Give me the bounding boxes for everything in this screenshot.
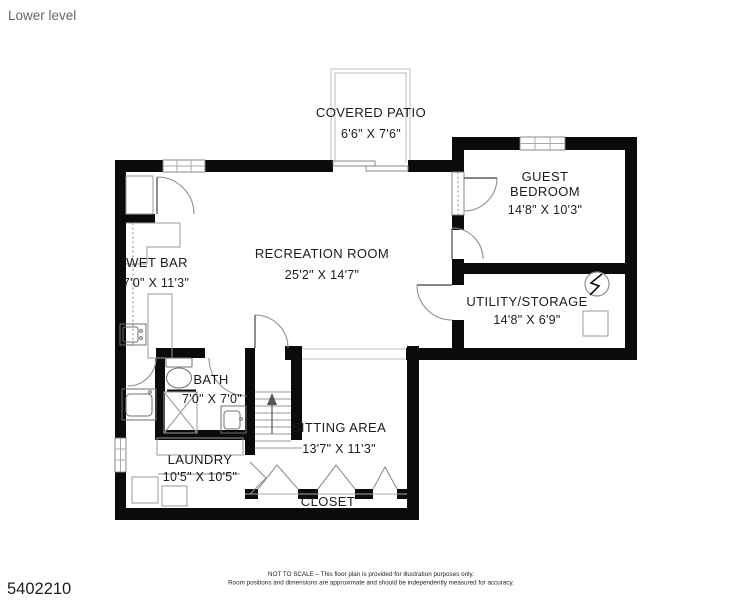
room-dims-laundry: 10'5" X 10'5" xyxy=(163,470,238,484)
room-label-sitting: SITTING AREA xyxy=(292,420,386,435)
room-dims-recreation: 25'2" X 14'7" xyxy=(285,268,360,282)
room-label-bath: BATH xyxy=(193,372,228,387)
wall xyxy=(406,348,637,360)
disclaimer-line-2: Room positions and dimensions are approx… xyxy=(228,580,514,587)
dryer-icon xyxy=(162,486,187,506)
room-dims-bath: 7'0" X 7'0" xyxy=(182,392,242,406)
wall xyxy=(115,508,419,520)
door-swing-icon xyxy=(255,315,288,348)
wall xyxy=(452,274,464,285)
window-icon xyxy=(115,438,126,472)
cased-opening xyxy=(302,349,406,359)
room-label-closet: CLOSET xyxy=(301,494,355,509)
wall xyxy=(452,320,464,348)
room-dims-wet-bar: 7'0" X 11'3" xyxy=(123,276,189,290)
door-swing-icon xyxy=(417,285,452,320)
wall-opening-frame xyxy=(452,172,464,215)
wall xyxy=(625,137,637,360)
door-swing-icon xyxy=(464,178,497,211)
page-title: Lower level xyxy=(8,8,76,23)
room-label-recreation: RECREATION ROOM xyxy=(255,246,389,261)
door-swing-icon xyxy=(126,176,194,214)
sink-icon xyxy=(122,389,156,420)
room-dims-sitting: 13'7" X 11'3" xyxy=(302,442,376,456)
bifold-door-icon xyxy=(245,465,407,494)
sink-icon xyxy=(221,406,246,433)
wall xyxy=(115,160,126,438)
door-swing-icon xyxy=(452,228,483,259)
room-label-wet-bar: WET BAR xyxy=(126,255,188,270)
toilet-icon xyxy=(166,358,192,388)
wet-bar-counter xyxy=(126,223,180,358)
wall xyxy=(205,160,333,172)
room-label-guest-bedroom-1: GUEST xyxy=(522,169,569,184)
disclaimer-line-1: NOT TO SCALE – This floor plan is provid… xyxy=(268,571,474,578)
window-icon xyxy=(163,160,205,172)
floor-plan-drawing: Lower level COVERED PATIO 6'6" X 7'6" GU… xyxy=(0,0,741,600)
room-dims-covered-patio: 6'6" X 7'6" xyxy=(341,127,401,141)
wall xyxy=(115,214,155,223)
water-heater-icon xyxy=(583,311,608,336)
window-icon xyxy=(520,137,565,150)
floor-plan-page: Lower level COVERED PATIO 6'6" X 7'6" GU… xyxy=(0,0,741,600)
wall xyxy=(452,137,464,177)
sliding-door-icon xyxy=(333,161,408,171)
room-dims-guest-bedroom: 14'8" X 10'3" xyxy=(508,203,583,217)
wall xyxy=(156,348,205,358)
wall xyxy=(407,346,419,520)
room-dims-utility: 14'8" X 6'9" xyxy=(493,313,560,327)
room-label-guest-bedroom-2: BEDROOM xyxy=(510,184,580,199)
listing-id: 5402210 xyxy=(7,580,71,598)
wall xyxy=(452,263,637,274)
room-label-laundry: LAUNDRY xyxy=(168,452,233,467)
washer-icon xyxy=(132,477,158,503)
wall xyxy=(408,160,452,172)
wall xyxy=(245,348,255,358)
electrical-panel-icon xyxy=(585,272,609,296)
room-label-utility: UTILITY/STORAGE xyxy=(466,294,587,309)
door-swing-icon xyxy=(128,358,156,386)
room-label-covered-patio: COVERED PATIO xyxy=(316,105,426,120)
